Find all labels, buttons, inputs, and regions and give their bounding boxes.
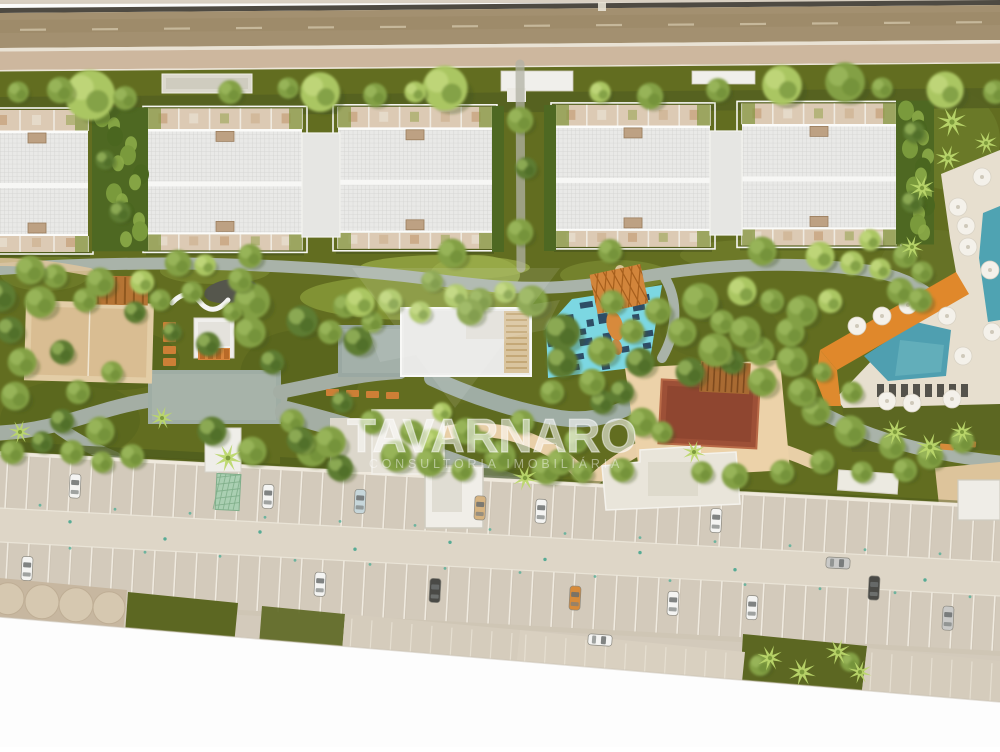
svg-text:TAVARNARO: TAVARNARO [347,409,637,462]
svg-text:CONSULTORIA IMOBILIÁRIA: CONSULTORIA IMOBILIÁRIA [369,456,623,471]
